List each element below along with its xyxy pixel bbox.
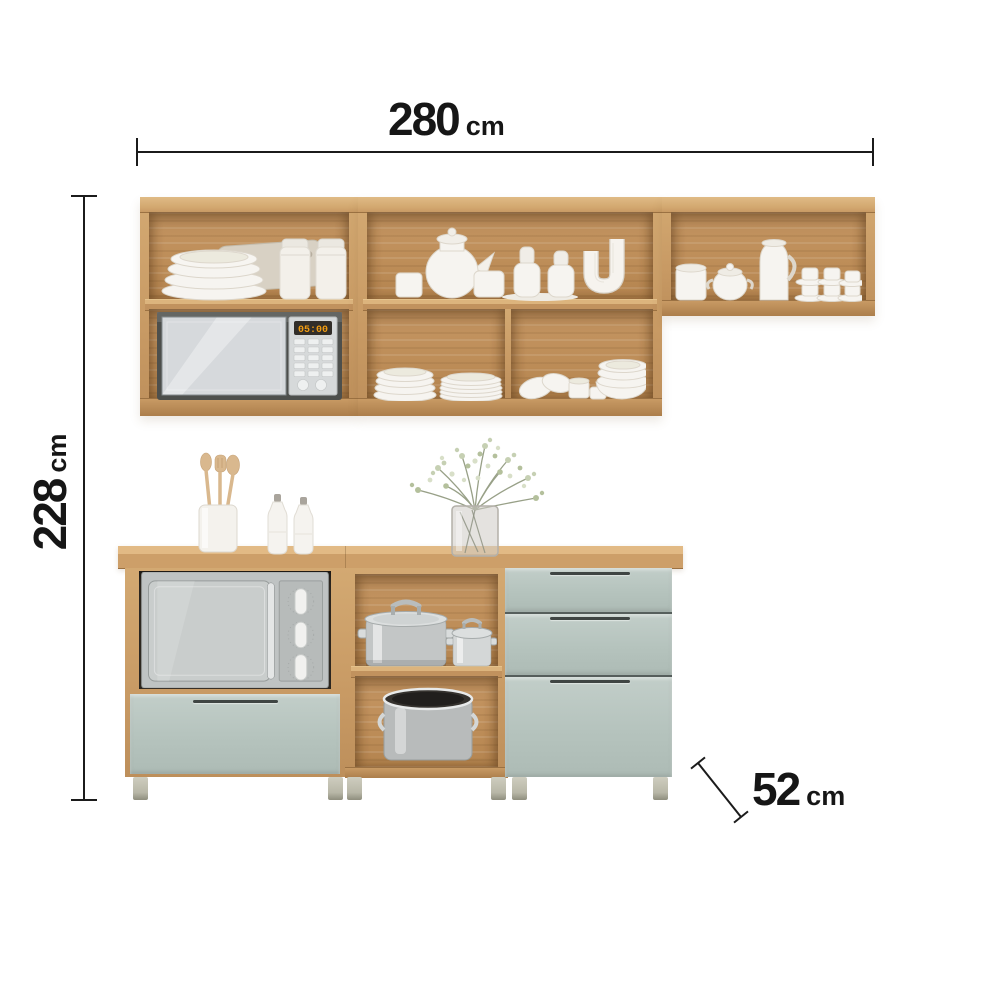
cups-and-pitcher xyxy=(672,228,862,302)
depth-dimension-label: 52 cm xyxy=(752,766,845,812)
drawer-bottom xyxy=(505,677,672,777)
microwave-display-time: 05:00 xyxy=(298,325,328,336)
drawer-top xyxy=(505,568,672,612)
sugar-bowl xyxy=(708,264,753,301)
countertop-seam xyxy=(345,546,346,568)
width-dimension-line xyxy=(137,151,874,153)
plate-stacks xyxy=(372,356,504,401)
drawer-handle xyxy=(550,680,630,683)
wall-cabinet-middle xyxy=(358,197,662,415)
width-unit: cm xyxy=(466,113,505,140)
utensil-holder xyxy=(192,450,244,555)
width-dimension-label: 280 cm xyxy=(388,96,505,142)
ceramic-bottles xyxy=(264,494,316,555)
microwave: 05:00 xyxy=(157,312,342,400)
flower-vase xyxy=(390,428,555,558)
width-dimension-tick-left xyxy=(136,138,138,166)
tea-set-and-vase xyxy=(368,215,648,301)
base-cabinet-right xyxy=(505,568,672,777)
cabinet-leg xyxy=(133,777,148,800)
drawer-handle xyxy=(550,617,630,620)
stockpot xyxy=(375,684,481,766)
cabinet-leg xyxy=(512,777,527,800)
drawer-handle xyxy=(550,572,630,575)
depth-value: 52 xyxy=(752,766,799,812)
left-base-drawer xyxy=(130,694,340,774)
dishes-board-jars xyxy=(152,217,352,301)
glass-vase xyxy=(452,506,498,556)
width-value: 280 xyxy=(388,96,459,142)
height-value: 228 xyxy=(27,480,73,551)
wall-cabinet-left: 05:00 xyxy=(140,197,358,415)
steel-pots xyxy=(357,592,497,668)
cornice xyxy=(662,197,875,213)
cabinet-leg xyxy=(347,777,362,800)
grill-oven xyxy=(140,572,330,688)
oven-handle xyxy=(267,583,274,679)
cabinet-leg xyxy=(328,777,343,800)
base-cabinet-left xyxy=(125,568,345,777)
height-dimension-line xyxy=(83,196,85,800)
pitcher xyxy=(760,240,795,301)
condiment-shakers xyxy=(502,247,578,301)
mug xyxy=(676,264,706,300)
bowl-stack xyxy=(162,250,266,300)
wall-cabinet-right xyxy=(662,197,875,315)
bowls-and-cups xyxy=(514,354,646,401)
cabinet-bottom xyxy=(345,767,508,778)
height-dimension-tick-bottom xyxy=(71,799,97,801)
stacked-teacups xyxy=(795,268,862,302)
depth-unit: cm xyxy=(806,783,845,810)
base-shelf-unit xyxy=(345,568,508,777)
cornice xyxy=(140,197,358,213)
pot-large xyxy=(358,602,454,666)
oven-niche xyxy=(139,571,331,689)
cabinet-bottom xyxy=(140,398,358,416)
u-shaped-vase xyxy=(591,239,617,286)
drawer-handle xyxy=(193,700,278,703)
drawer-middle xyxy=(505,614,672,675)
cabinet-leg xyxy=(491,777,506,800)
height-dimension-tick-top xyxy=(71,195,97,197)
product-dimension-diagram: 280 cm 228 cm 52 cm xyxy=(0,0,1000,1000)
cornice xyxy=(358,197,662,213)
cabinet-leg xyxy=(653,777,668,800)
tea-set xyxy=(396,228,504,298)
pot-small xyxy=(446,620,497,666)
height-unit: cm xyxy=(44,434,71,473)
depth-dimension-line xyxy=(684,750,754,828)
cabinet-bottom xyxy=(662,300,875,316)
width-dimension-tick-right xyxy=(872,138,874,166)
height-dimension-label: 228 cm xyxy=(27,382,83,602)
